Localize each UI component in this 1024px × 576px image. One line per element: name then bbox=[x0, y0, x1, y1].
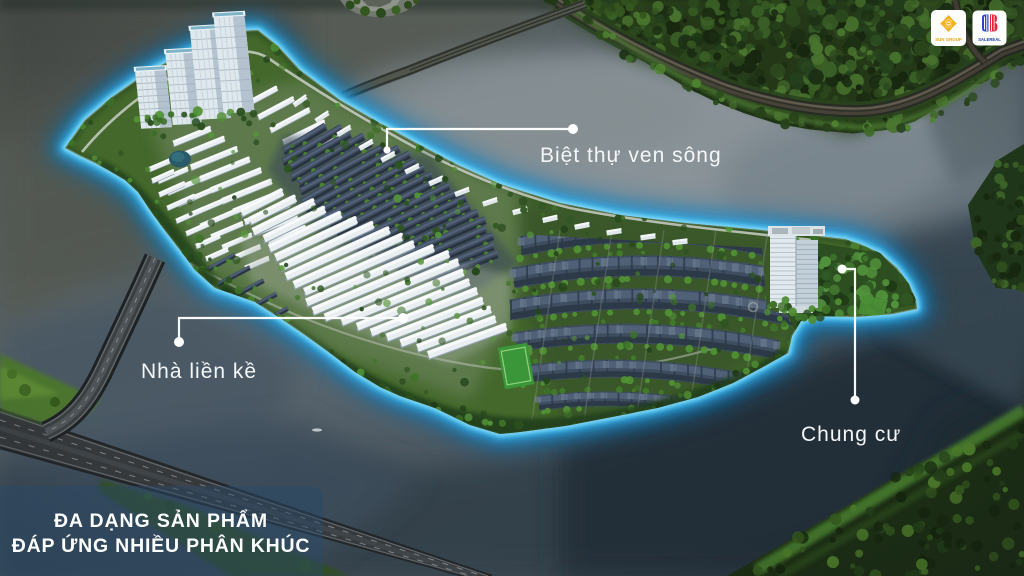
svg-text:SUN GROUP: SUN GROUP bbox=[935, 37, 962, 42]
svg-text:ĐÁP ỨNG NHIỀU PHÂN KHÚC: ĐÁP ỨNG NHIỀU PHÂN KHÚC bbox=[12, 533, 311, 557]
svg-text:SALEREAL: SALEREAL bbox=[978, 37, 1001, 42]
svg-text:Nhà liền kề: Nhà liền kề bbox=[141, 360, 257, 383]
svg-text:Biệt thự ven sông: Biệt thự ven sông bbox=[540, 144, 722, 167]
svg-text:ĐA DẠNG SẢN PHẨM: ĐA DẠNG SẢN PHẨM bbox=[54, 509, 268, 532]
svg-text:Chung cư: Chung cư bbox=[801, 423, 901, 446]
